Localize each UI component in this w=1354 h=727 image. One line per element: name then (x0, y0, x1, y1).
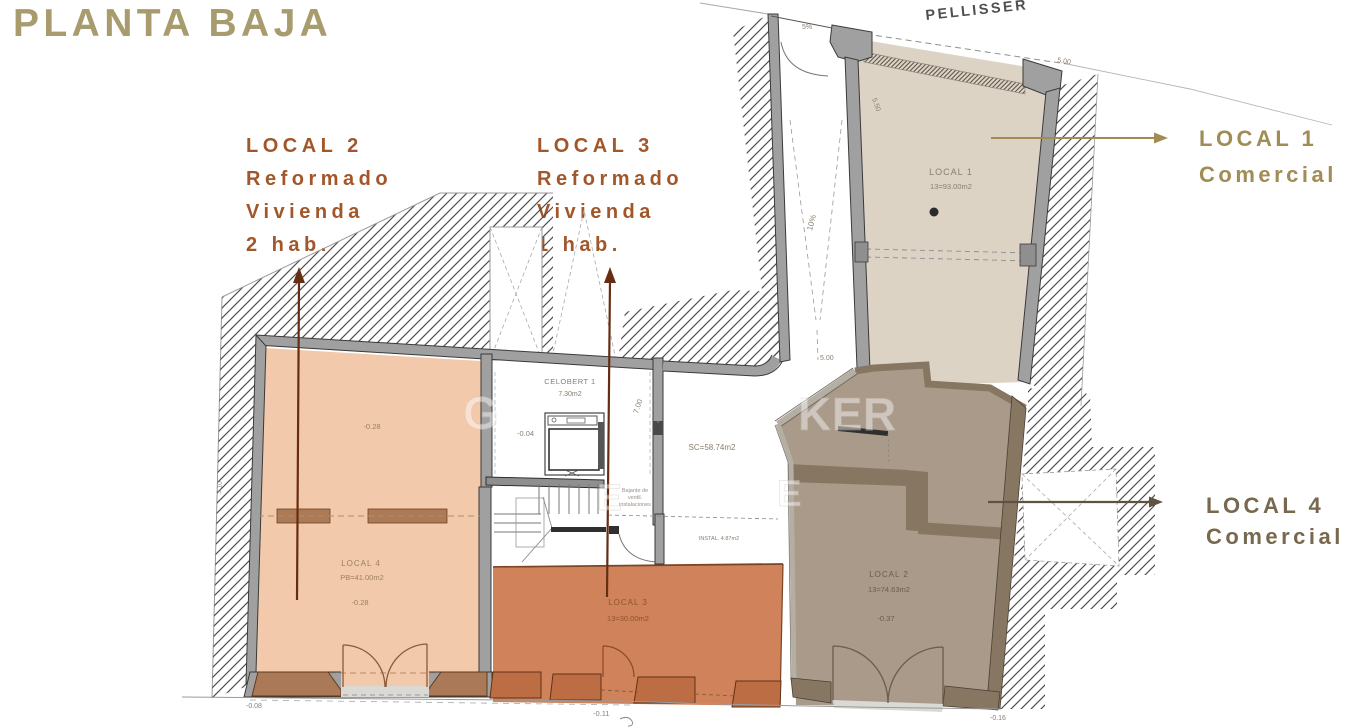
svg-text:-0.28: -0.28 (363, 422, 380, 431)
svg-text:Comercial: Comercial (1199, 162, 1337, 187)
svg-text:-0.16: -0.16 (990, 715, 1006, 722)
svg-text:CELOBERT 1: CELOBERT 1 (544, 377, 595, 386)
svg-text:Vivienda: Vivienda (246, 201, 364, 223)
svg-text:Comercial: Comercial (1206, 524, 1344, 549)
svg-text:ventil.: ventil. (628, 495, 643, 501)
svg-text:13=30.00m2: 13=30.00m2 (607, 614, 649, 623)
svg-text:13=74.63m2: 13=74.63m2 (868, 585, 910, 594)
svg-text:SC=58.74m2: SC=58.74m2 (689, 443, 736, 452)
svg-text:LOCAL 1: LOCAL 1 (1199, 126, 1317, 151)
svg-text:-0.11: -0.11 (593, 709, 610, 718)
svg-text:7.30m2: 7.30m2 (558, 391, 581, 398)
svg-text:-0.04: -0.04 (517, 429, 534, 438)
svg-text:LOCAL 3: LOCAL 3 (608, 598, 648, 607)
svg-text:LOCAL 1: LOCAL 1 (929, 167, 973, 177)
svg-text:5%: 5% (802, 24, 812, 31)
svg-text:KER: KER (798, 388, 897, 440)
svg-text:Bajante de: Bajante de (622, 488, 648, 494)
svg-text:13=93.00m2: 13=93.00m2 (930, 182, 972, 191)
svg-text:Reformado: Reformado (246, 168, 392, 190)
svg-text:LOCAL 4: LOCAL 4 (341, 559, 381, 568)
svg-text:LOCAL 2: LOCAL 2 (869, 570, 909, 579)
svg-text:E: E (777, 473, 802, 514)
svg-text:LOCAL 2: LOCAL 2 (246, 135, 363, 157)
svg-text:E: E (597, 477, 622, 518)
svg-text:Reformado: Reformado (537, 168, 683, 190)
svg-text:Vivienda: Vivienda (537, 201, 655, 223)
svg-text:PB=41.00m2: PB=41.00m2 (340, 573, 384, 582)
svg-text:5.00: 5.00 (820, 355, 834, 362)
svg-text:INSTAL. 4.87m2: INSTAL. 4.87m2 (699, 536, 739, 542)
svg-text:-0.08: -0.08 (246, 703, 262, 710)
svg-text:-0.28: -0.28 (351, 598, 368, 607)
svg-text:PLANTA BAJA: PLANTA BAJA (13, 2, 332, 45)
svg-text:LOCAL 4: LOCAL 4 (1206, 493, 1324, 518)
svg-text:3.10: 3.10 (216, 481, 224, 494)
svg-text:instalaciones: instalaciones (619, 502, 651, 508)
svg-text:-0.37: -0.37 (877, 614, 894, 623)
svg-text:LOCAL 3: LOCAL 3 (537, 135, 654, 157)
svg-text:G: G (463, 387, 499, 439)
